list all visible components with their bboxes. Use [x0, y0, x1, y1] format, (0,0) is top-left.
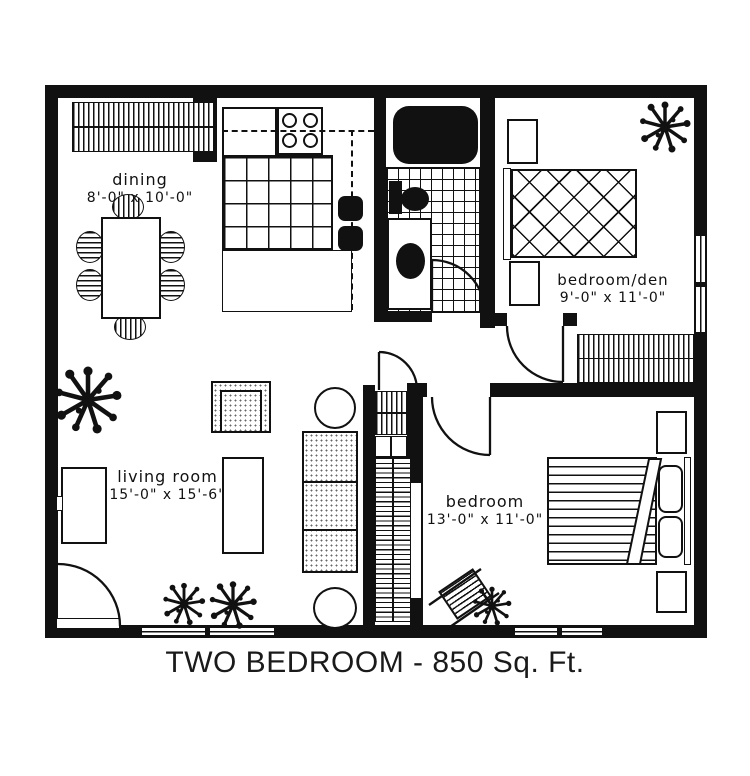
den-bed-headboard	[503, 168, 511, 260]
room-name: bedroom	[425, 492, 545, 512]
shelf-divider-line	[392, 458, 394, 621]
sofa-cushion-line	[304, 481, 356, 483]
den-bed	[511, 169, 637, 258]
stove-burner	[303, 133, 318, 148]
wall-closet-left	[363, 385, 375, 638]
shelf-divider-line	[390, 437, 392, 456]
bathtub	[393, 106, 478, 164]
armchair-inner-line	[220, 390, 262, 431]
dining-chair	[157, 269, 185, 301]
den-nightstand	[507, 119, 538, 164]
room-dimensions: 13'-0" x 11'-0"	[425, 512, 545, 530]
wall-bedroom-top	[490, 383, 707, 397]
bedroom-nightstand	[656, 571, 687, 613]
dining-chair	[76, 231, 104, 263]
plant	[50, 362, 126, 438]
armchair	[211, 381, 271, 433]
wall-top	[45, 85, 707, 98]
coat-closet-shelf	[375, 436, 407, 457]
kitchen-floor	[222, 250, 352, 312]
wall-bath-right	[480, 98, 495, 328]
plant	[206, 578, 260, 632]
dining-chair	[157, 231, 185, 263]
bedroom-nightstand	[656, 411, 687, 454]
closet-rod-line	[376, 412, 406, 414]
kitchen-sink-bowl	[338, 226, 363, 251]
wall-den-door-stub	[563, 313, 577, 326]
round-side-table	[314, 387, 356, 429]
sofa-cushion-line	[304, 529, 356, 531]
den-closet-hanging	[577, 334, 694, 383]
living-room-label: living room 15'-0" x 15'-6"	[105, 467, 230, 505]
toilet-bowl	[401, 187, 429, 211]
dining-room-label: dining 8'-0" x 10'-0"	[80, 170, 200, 208]
stove-burner	[282, 133, 297, 148]
room-dimensions: 9'-0" x 11'-0"	[548, 290, 678, 308]
wall-closet-right-lower	[410, 598, 423, 638]
coat-closet-hanging	[375, 391, 407, 435]
balcony-door-leaf	[56, 618, 120, 629]
room-dimensions: 8'-0" x 10'-0"	[80, 190, 200, 208]
bedroom-window-divider	[557, 626, 562, 637]
bedroom-bed	[547, 457, 657, 565]
closet-right-face-line	[421, 483, 423, 598]
bed-headboard	[684, 457, 691, 565]
room-name: living room	[105, 467, 230, 487]
bedroom-den-label: bedroom/den 9'-0" x 11'-0"	[548, 271, 678, 307]
room-name: dining	[80, 170, 200, 190]
floor-plan: dining 8'-0" x 10'-0" living room 15'-0"…	[0, 0, 750, 776]
bedroom-door-arc	[432, 397, 490, 455]
room-name: bedroom/den	[548, 271, 678, 290]
window-mullion-line	[73, 126, 213, 128]
stove-burner	[282, 113, 297, 128]
wall-right	[694, 85, 707, 638]
tv-cabinet	[61, 467, 107, 544]
den-window-divider	[694, 282, 707, 287]
balcony-door-arc	[58, 564, 120, 626]
stove-burner	[303, 113, 318, 128]
refrigerator	[222, 107, 277, 157]
closet-rod-line	[578, 358, 693, 360]
den-door-arc	[507, 326, 563, 382]
room-dimensions: 15'-0" x 15'-6"	[105, 487, 230, 505]
den-nightstand	[509, 261, 540, 306]
tv-cabinet-knob	[56, 496, 63, 511]
plant	[470, 584, 514, 628]
dining-window-drapes	[72, 102, 214, 152]
sofa	[302, 431, 358, 573]
plant	[160, 580, 208, 628]
dining-table	[101, 217, 161, 319]
bedroom-label: bedroom 13'-0" x 11'-0"	[425, 492, 545, 530]
linen-closet-shelves	[375, 457, 411, 622]
bed-pillow	[658, 516, 683, 558]
kitchen-sink-bowl	[338, 196, 363, 221]
wall-hall-den	[484, 313, 507, 326]
round-side-table	[313, 587, 357, 629]
bed-pillow	[658, 465, 683, 513]
dining-chair	[76, 269, 104, 301]
kitchen-counter-tile	[222, 155, 333, 250]
vanity-sink	[396, 243, 425, 279]
plant	[636, 98, 694, 156]
wall-bath-left	[374, 98, 386, 312]
plan-title: TWO BEDROOM - 850 Sq. Ft.	[0, 646, 750, 680]
